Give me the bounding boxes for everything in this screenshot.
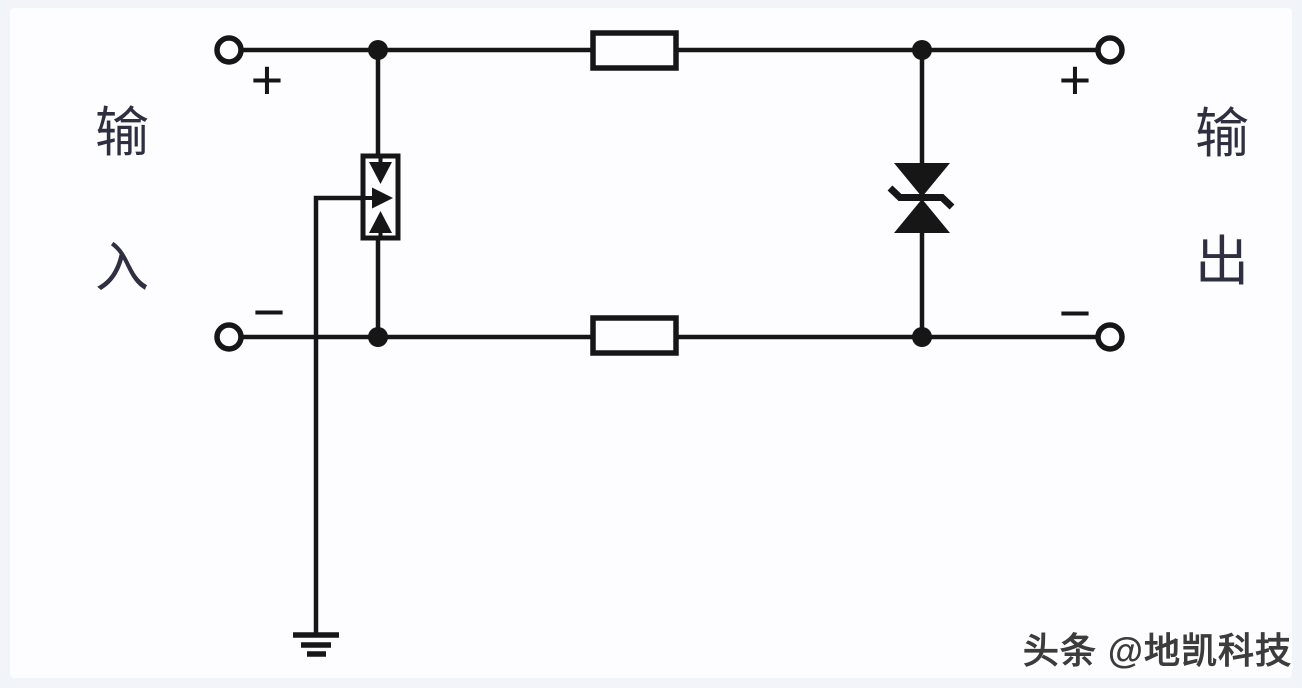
junction-dot-top-right <box>912 40 932 60</box>
output-plus-label: + <box>1043 48 1107 112</box>
junction-dot-bottom-right <box>912 327 932 347</box>
tvs-lower-triangle <box>894 199 950 233</box>
tvs-diode-symbol <box>890 163 952 233</box>
gas-discharge-tube-symbol <box>363 156 398 238</box>
input-minus-label: − <box>237 280 301 344</box>
output-label-char-2: 出 <box>1190 224 1254 288</box>
wire-ground <box>316 198 363 633</box>
input-label-char-1: 输 <box>90 95 154 159</box>
input-plus-label: + <box>235 48 299 112</box>
ground-symbol <box>293 635 339 654</box>
watermark: 头条 @地凯科技 <box>1023 622 1292 674</box>
output-label-char-1: 输 <box>1190 96 1254 160</box>
tvs-upper-triangle <box>894 163 950 197</box>
junction-dot-bottom-left <box>368 327 388 347</box>
junction-dot-top-left <box>368 40 388 60</box>
resistor-bottom-symbol <box>593 318 676 353</box>
input-label-char-2: 入 <box>90 230 154 294</box>
resistor-top-symbol <box>593 33 676 68</box>
output-minus-label: − <box>1043 281 1107 345</box>
